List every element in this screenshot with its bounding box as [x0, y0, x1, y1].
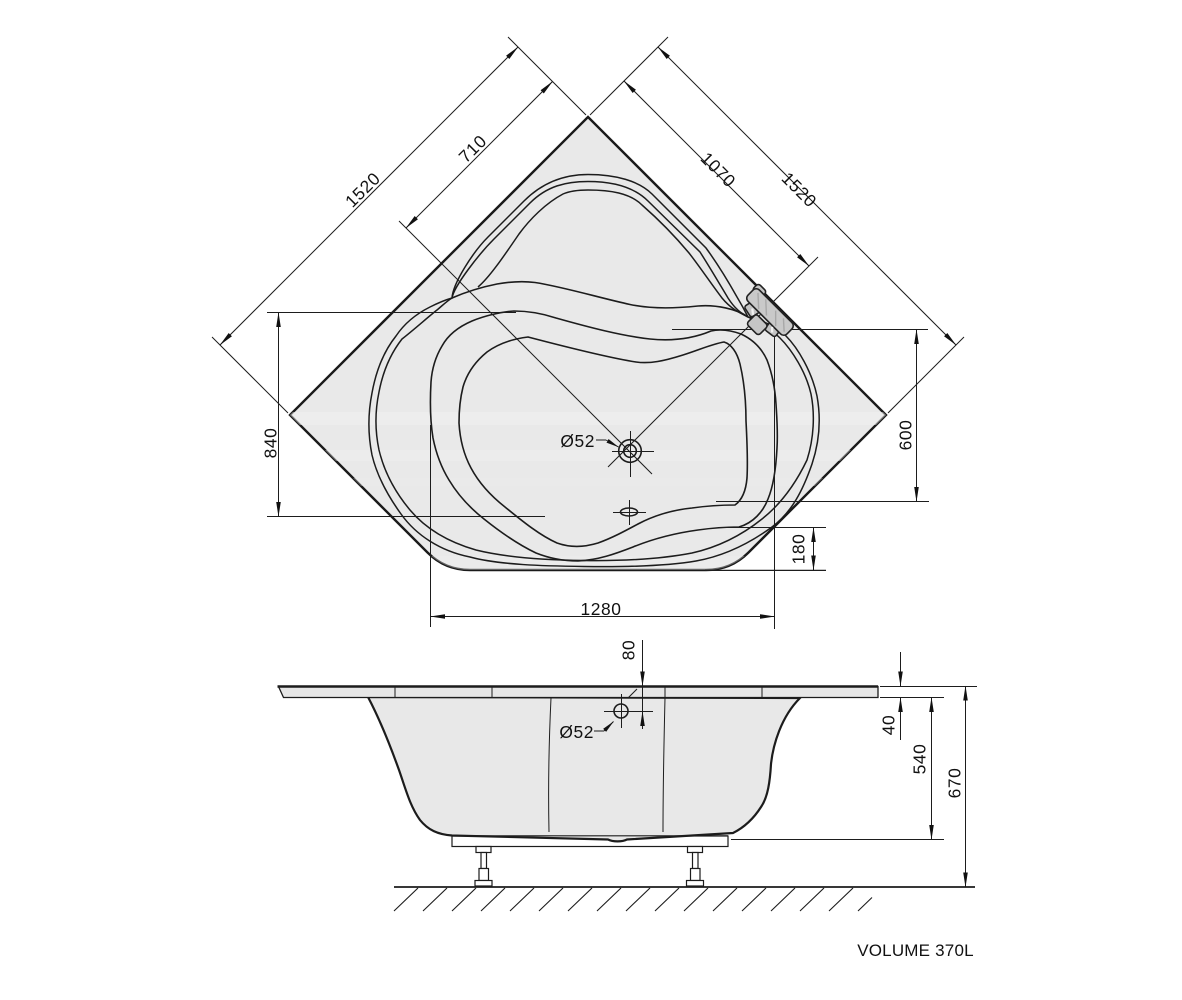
svg-text:540: 540: [910, 744, 930, 775]
svg-text:1520: 1520: [341, 168, 384, 211]
svg-text:1280: 1280: [580, 599, 621, 619]
svg-text:670: 670: [945, 768, 965, 799]
svg-text:1520: 1520: [778, 168, 821, 211]
svg-text:Ø52: Ø52: [559, 722, 594, 742]
svg-text:80: 80: [619, 640, 639, 661]
svg-text:180: 180: [789, 534, 809, 565]
svg-text:VOLUME 370L: VOLUME 370L: [857, 941, 974, 960]
svg-text:1070: 1070: [697, 148, 740, 191]
svg-text:40: 40: [879, 715, 899, 736]
svg-text:710: 710: [455, 131, 491, 167]
svg-text:600: 600: [896, 420, 916, 451]
svg-text:Ø52: Ø52: [560, 431, 595, 451]
svg-text:840: 840: [261, 428, 281, 459]
